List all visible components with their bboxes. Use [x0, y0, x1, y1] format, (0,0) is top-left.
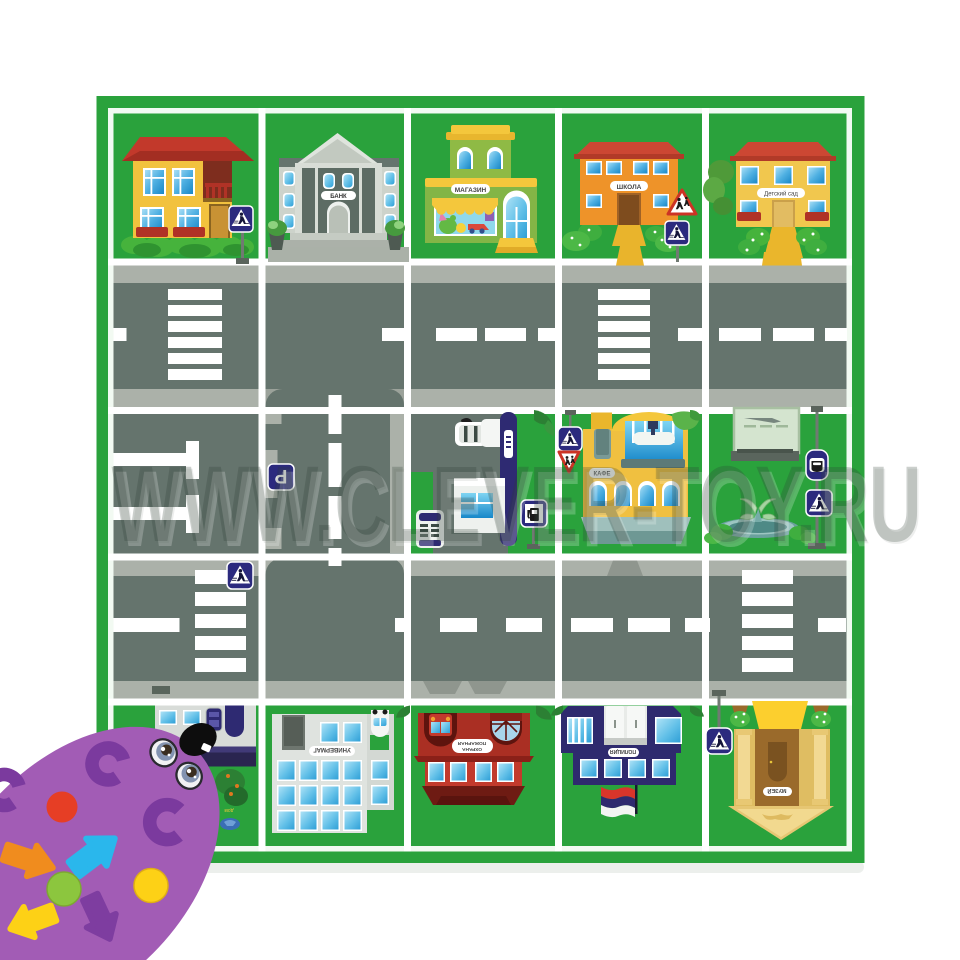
svg-text:WWW.CLEVER-TOY.RU: WWW.CLEVER-TOY.RU [113, 445, 923, 566]
svg-text:ОХРАНА: ОХРАНА [462, 746, 482, 752]
svg-text:МАГАЗИН: МАГАЗИН [455, 187, 487, 194]
svg-text:БАНК: БАНК [330, 194, 347, 200]
svg-text:МУЗЕЙ: МУЗЕЙ [767, 787, 786, 795]
svg-text:УНИВЕРМАГ: УНИВЕРМАГ [313, 746, 351, 752]
svg-text:Детский сад: Детский сад [764, 191, 798, 198]
svg-text:дом: дом [224, 807, 234, 813]
svg-text:ПОЛИЦИЯ: ПОЛИЦИЯ [610, 748, 637, 754]
svg-text:ПОЖАРНАЯ: ПОЖАРНАЯ [457, 740, 486, 746]
svg-text:ШКОЛА: ШКОЛА [617, 184, 642, 191]
